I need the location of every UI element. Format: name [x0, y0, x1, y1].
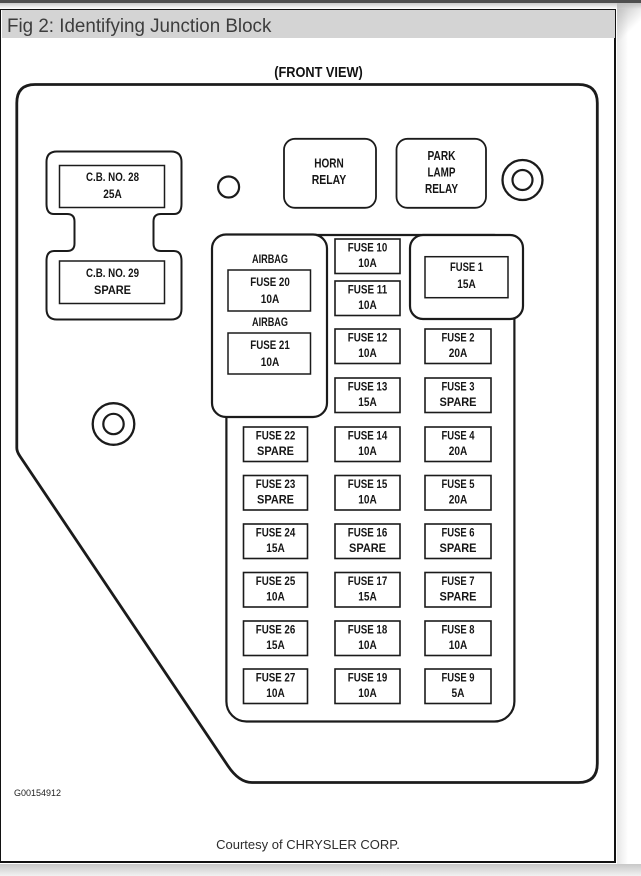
svg-text:FUSE 27: FUSE 27	[256, 671, 296, 685]
svg-text:FUSE 12: FUSE 12	[348, 331, 388, 345]
svg-text:20A: 20A	[449, 444, 468, 458]
svg-text:FUSE 15: FUSE 15	[348, 477, 388, 491]
svg-text:FUSE 4: FUSE 4	[442, 429, 475, 443]
svg-text:SPARE: SPARE	[440, 541, 477, 555]
svg-text:FUSE 8: FUSE 8	[442, 623, 475, 637]
svg-text:10A: 10A	[266, 686, 285, 700]
svg-text:RELAY: RELAY	[312, 173, 347, 187]
svg-text:FUSE 14: FUSE 14	[348, 429, 388, 443]
svg-text:SPARE: SPARE	[440, 590, 477, 604]
svg-text:FUSE 6: FUSE 6	[442, 526, 475, 540]
svg-text:20A: 20A	[449, 493, 468, 507]
svg-text:FUSE 5: FUSE 5	[442, 477, 475, 491]
svg-text:FUSE 25: FUSE 25	[256, 574, 296, 588]
svg-text:SPARE: SPARE	[257, 493, 294, 507]
svg-text:FUSE 10: FUSE 10	[348, 241, 388, 255]
svg-text:10A: 10A	[358, 686, 377, 700]
svg-text:15A: 15A	[358, 590, 377, 604]
svg-text:15A: 15A	[457, 277, 476, 291]
svg-text:10A: 10A	[358, 346, 377, 360]
svg-text:FUSE 9: FUSE 9	[442, 671, 475, 685]
svg-text:15A: 15A	[358, 395, 377, 409]
svg-text:HORN: HORN	[314, 157, 344, 171]
svg-text:FUSE 1: FUSE 1	[450, 260, 483, 274]
svg-text:PARK: PARK	[428, 149, 456, 163]
svg-text:(FRONT VIEW): (FRONT VIEW)	[274, 64, 363, 81]
svg-text:C.B. NO. 29: C.B. NO. 29	[86, 266, 139, 280]
svg-text:10A: 10A	[261, 355, 280, 369]
svg-text:FUSE 19: FUSE 19	[348, 671, 388, 685]
svg-text:15A: 15A	[266, 638, 285, 652]
svg-text:10A: 10A	[449, 638, 468, 652]
svg-text:10A: 10A	[358, 638, 377, 652]
svg-text:FUSE 3: FUSE 3	[442, 380, 475, 394]
svg-text:Courtesy of CHRYSLER CORP.: Courtesy of CHRYSLER CORP.	[216, 837, 400, 852]
svg-text:AIRBAG: AIRBAG	[252, 315, 288, 329]
svg-text:15A: 15A	[266, 541, 285, 555]
svg-text:10A: 10A	[358, 444, 377, 458]
svg-text:10A: 10A	[358, 298, 377, 312]
svg-text:FUSE 17: FUSE 17	[348, 574, 388, 588]
svg-text:10A: 10A	[266, 590, 285, 604]
svg-text:10A: 10A	[358, 256, 377, 270]
svg-text:C.B. NO. 28: C.B. NO. 28	[86, 170, 139, 184]
svg-text:10A: 10A	[358, 493, 377, 507]
svg-text:SPARE: SPARE	[94, 283, 131, 297]
svg-text:SPARE: SPARE	[440, 395, 477, 409]
svg-text:FUSE 23: FUSE 23	[256, 477, 296, 491]
svg-text:FUSE 2: FUSE 2	[442, 331, 475, 345]
svg-text:FUSE 16: FUSE 16	[348, 526, 388, 540]
svg-text:FUSE 21: FUSE 21	[250, 338, 290, 352]
svg-text:LAMP: LAMP	[428, 166, 456, 180]
svg-text:10A: 10A	[261, 292, 280, 306]
svg-text:FUSE 22: FUSE 22	[256, 429, 296, 443]
svg-text:AIRBAG: AIRBAG	[252, 252, 288, 266]
svg-text:FUSE 18: FUSE 18	[348, 623, 388, 637]
svg-text:FUSE 20: FUSE 20	[250, 275, 290, 289]
svg-text:20A: 20A	[449, 346, 468, 360]
svg-text:RELAY: RELAY	[425, 182, 459, 196]
svg-text:FUSE 13: FUSE 13	[348, 380, 388, 394]
svg-text:SPARE: SPARE	[257, 444, 294, 458]
svg-text:FUSE 26: FUSE 26	[256, 623, 296, 637]
svg-text:FUSE 24: FUSE 24	[256, 526, 296, 540]
svg-text:SPARE: SPARE	[349, 541, 386, 555]
svg-text:FUSE 7: FUSE 7	[442, 574, 475, 588]
svg-text:25A: 25A	[103, 187, 122, 201]
svg-text:5A: 5A	[452, 686, 465, 700]
svg-text:G00154912: G00154912	[14, 788, 61, 798]
svg-text:FUSE 11: FUSE 11	[348, 283, 388, 297]
